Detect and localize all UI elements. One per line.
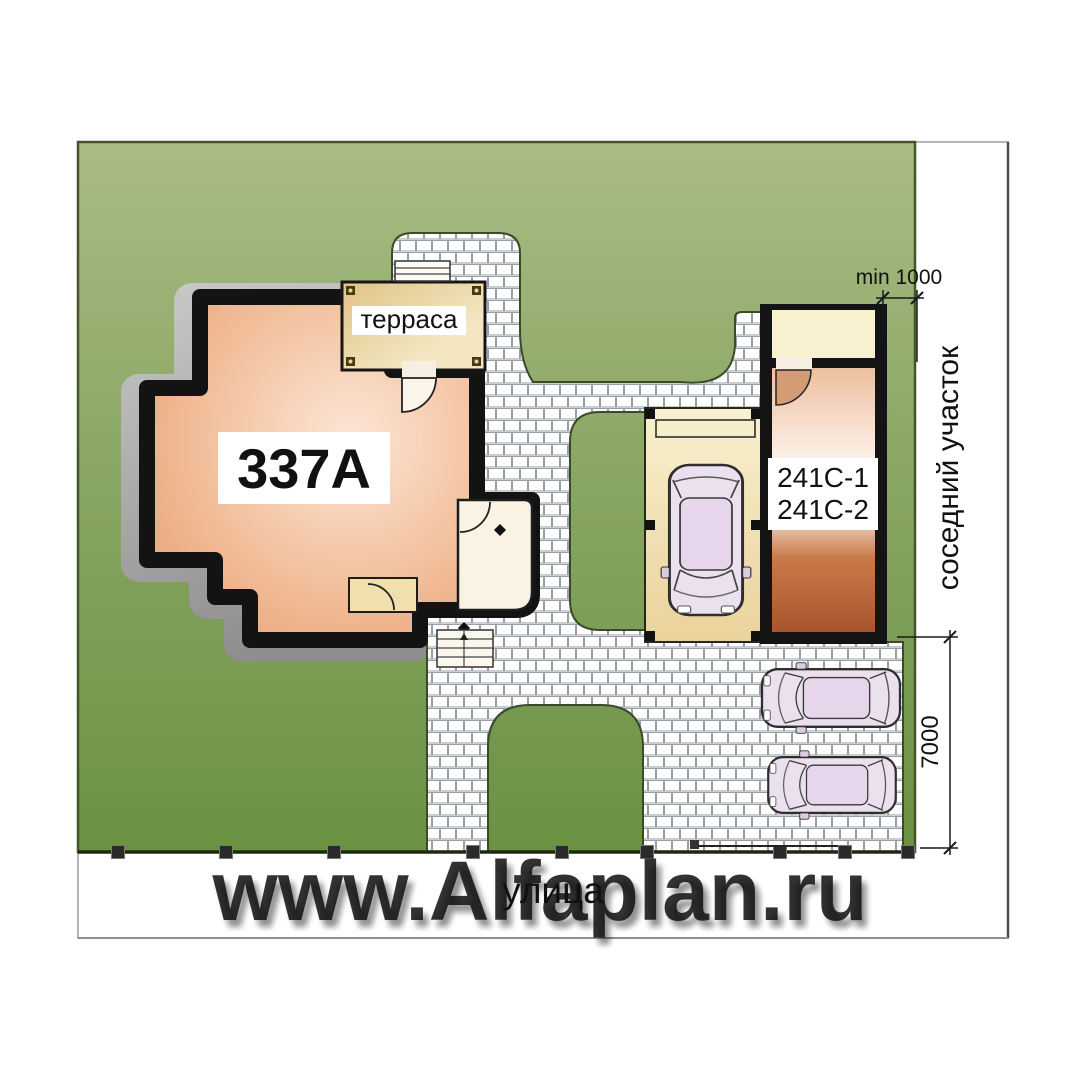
terrace-label: терраса xyxy=(361,304,458,334)
site-plan-screenshot: терраса 337A 241C-1 241C-2 xyxy=(0,0,1080,1080)
lawn-island-middle xyxy=(570,412,645,630)
watermark: www.Alfaplan.ru xyxy=(212,844,868,938)
terrace: терраса xyxy=(342,282,485,370)
dimension-min-1000-label: min 1000 xyxy=(856,266,942,289)
parked-car-bottom xyxy=(768,751,896,819)
site-plan-drawing: терраса 337A 241C-1 241C-2 xyxy=(0,0,1080,1080)
garage-label-1: 241C-1 xyxy=(777,462,869,493)
porch-steps xyxy=(437,630,493,667)
dimension-7000-label: 7000 xyxy=(917,715,944,768)
garage-label-2: 241C-2 xyxy=(777,494,869,525)
side-room xyxy=(349,578,417,612)
carport xyxy=(645,408,762,642)
entry-vestibule xyxy=(458,500,532,610)
lawn-island-bottom xyxy=(488,705,643,852)
car-in-carport xyxy=(661,465,751,615)
house-label: 337A xyxy=(237,437,371,500)
terrace-steps xyxy=(395,261,450,281)
neighbor-plot-label: соседний участок xyxy=(932,345,965,590)
parked-car-top xyxy=(762,663,900,734)
